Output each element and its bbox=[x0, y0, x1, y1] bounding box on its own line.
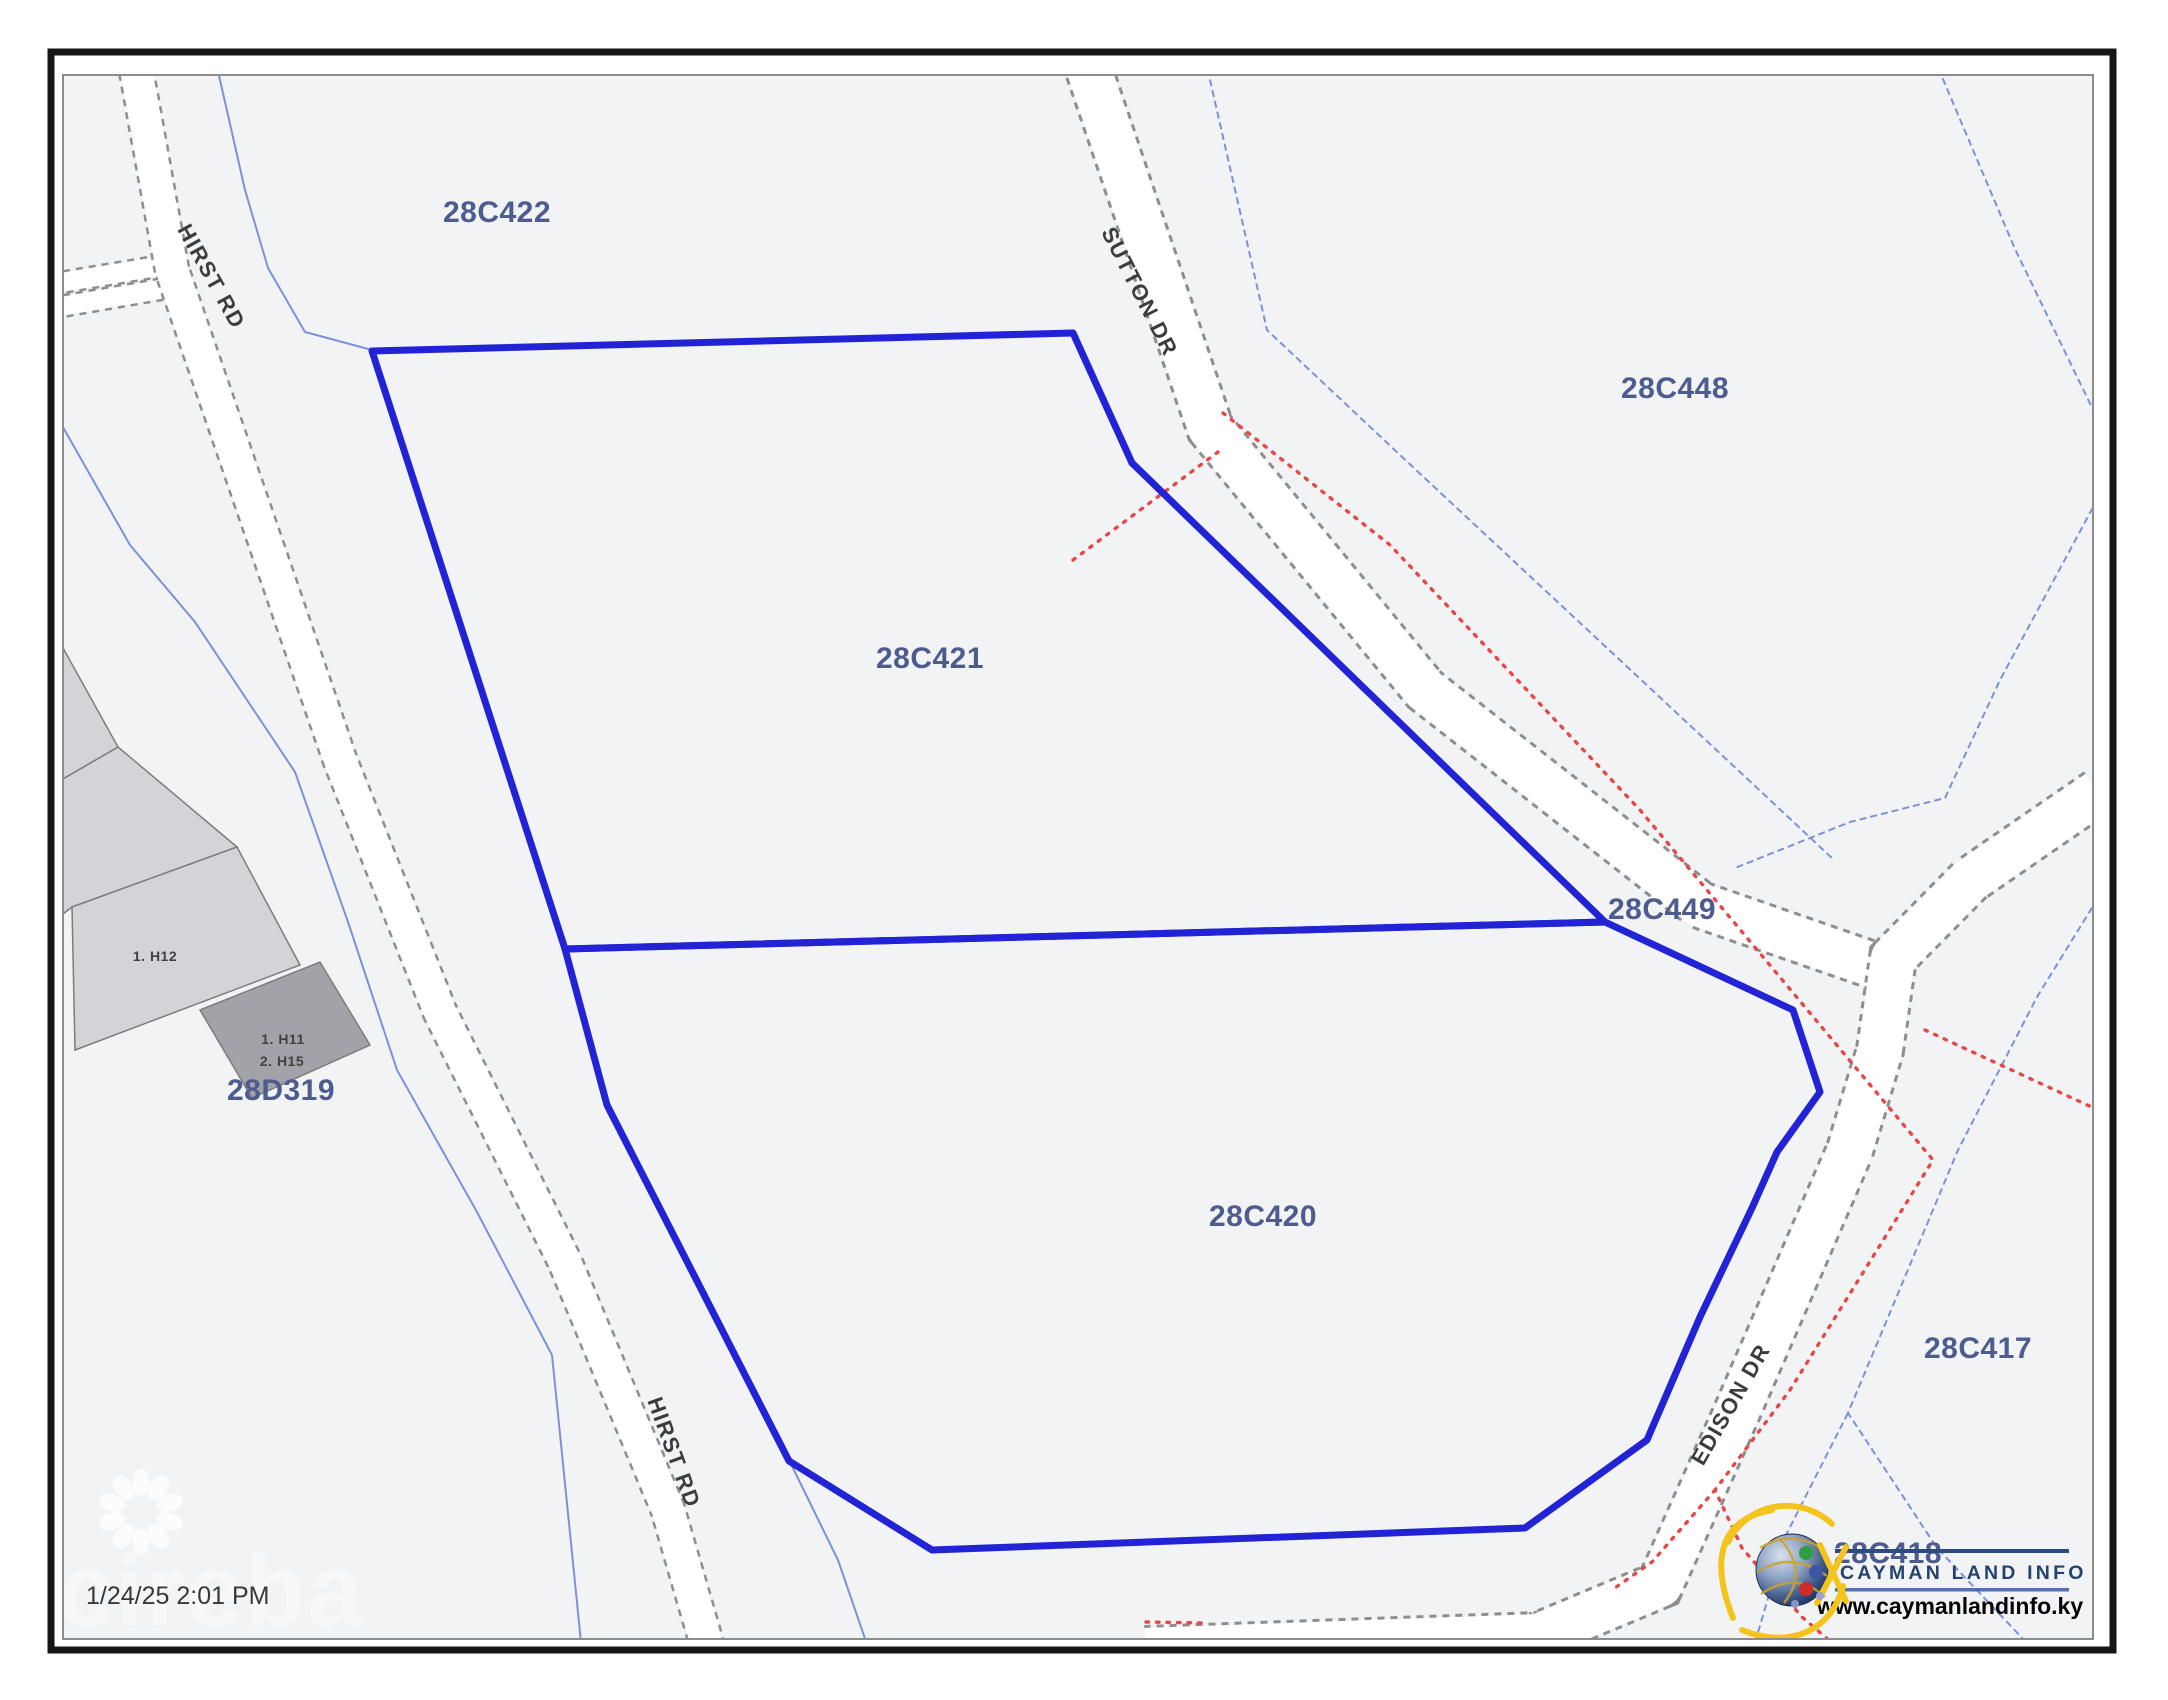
map-canvas[interactable]: cireba bbox=[0, 0, 2168, 1700]
parcel-label: 28C449 bbox=[1608, 893, 1716, 926]
map-export-page: cireba bbox=[0, 0, 2168, 1700]
globe-dot-blue bbox=[1809, 1565, 1823, 1579]
timestamp: 1/24/25 2:01 PM bbox=[86, 1582, 269, 1610]
globe-dot-lavender bbox=[1816, 1592, 1824, 1600]
parcel-label: 28C448 bbox=[1621, 372, 1729, 405]
parcel-label: 28C422 bbox=[443, 196, 551, 229]
parcel-label: 28C417 bbox=[1924, 1332, 2032, 1365]
logo-title: CAYMAN LAND INFO bbox=[1840, 1562, 2087, 1584]
building-label: 1. H12 bbox=[133, 948, 177, 964]
globe-dot-lavender bbox=[1791, 1600, 1799, 1608]
parcel-label: 28C421 bbox=[876, 642, 984, 675]
parcel-label: 28D319 bbox=[227, 1074, 335, 1107]
building-label: 1. H11 bbox=[261, 1031, 304, 1047]
building-label: 2. H15 bbox=[260, 1053, 304, 1069]
parcel-label: 28C420 bbox=[1209, 1200, 1317, 1233]
globe-dot-green bbox=[1799, 1546, 1813, 1560]
logo-rule-bottom bbox=[1835, 1588, 2069, 1592]
map-content-layer: cireba bbox=[52, 58, 2098, 1662]
logo-website: www.caymanlandinfo.ky bbox=[1816, 1593, 2083, 1619]
logo-rule-top bbox=[1835, 1549, 2069, 1553]
globe-dot-red bbox=[1799, 1582, 1813, 1596]
